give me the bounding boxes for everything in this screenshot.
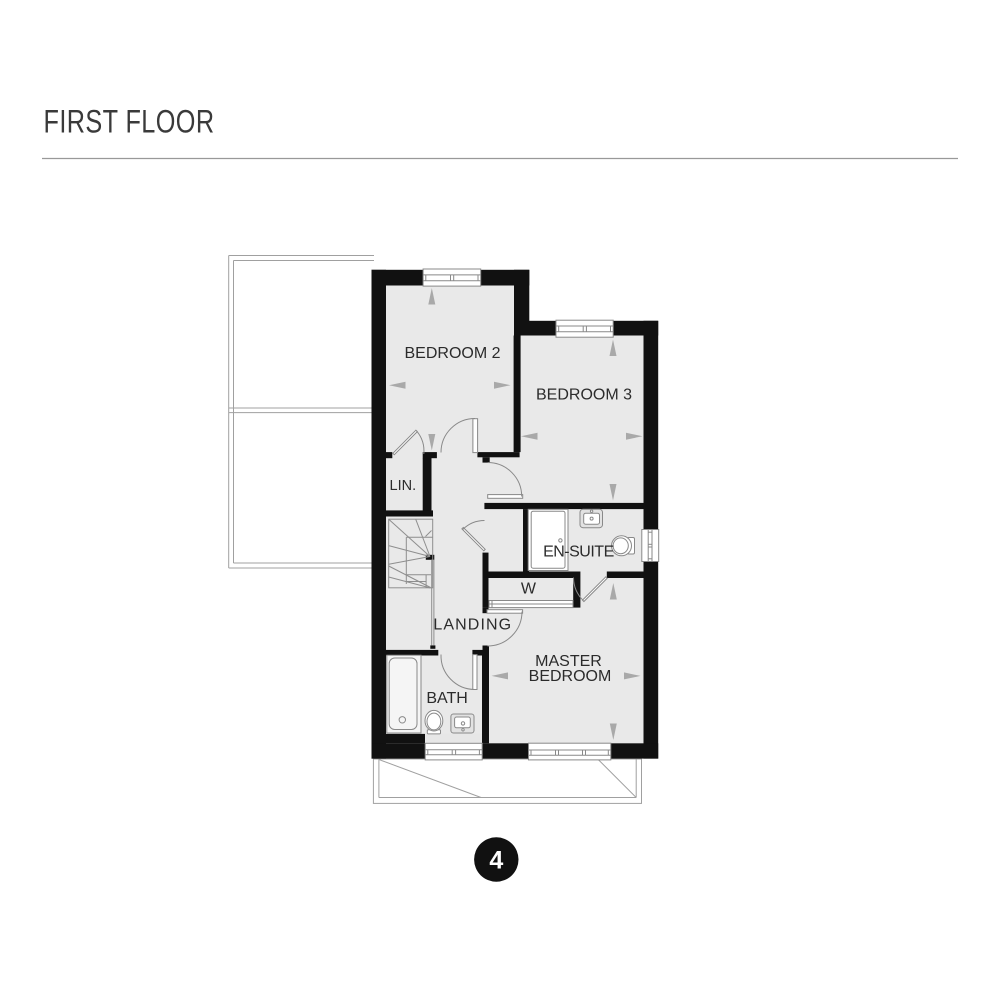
svg-text:LANDING: LANDING	[433, 617, 512, 634]
svg-text:BEDROOM: BEDROOM	[529, 668, 612, 685]
svg-text:LIN.: LIN.	[390, 478, 417, 494]
svg-text:FIRST FLOOR: FIRST FLOOR	[44, 105, 215, 141]
svg-text:EN-SUITE: EN-SUITE	[543, 544, 614, 561]
svg-text:BEDROOM 3: BEDROOM 3	[536, 387, 632, 404]
svg-text:W: W	[521, 581, 537, 598]
svg-text:BEDROOM 2: BEDROOM 2	[404, 345, 500, 362]
svg-text:4: 4	[489, 846, 503, 874]
svg-text:BATH: BATH	[426, 690, 467, 707]
